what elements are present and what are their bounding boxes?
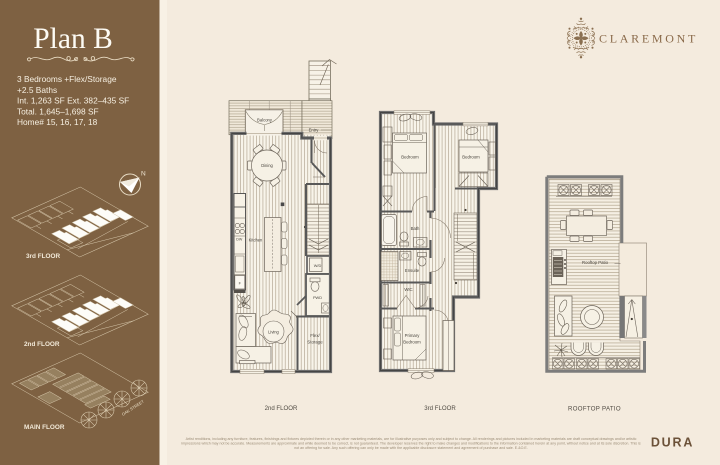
- svg-text:DURA: DURA: [651, 435, 694, 449]
- svg-text:2nd FLOOR: 2nd FLOOR: [265, 405, 298, 412]
- svg-text:Plan B: Plan B: [33, 23, 113, 55]
- svg-text:WIC: WIC: [404, 287, 412, 292]
- svg-text:MAIN FLOOR: MAIN FLOOR: [24, 424, 65, 431]
- svg-text:W/D: W/D: [314, 263, 322, 268]
- svg-text:2nd FLOOR: 2nd FLOOR: [24, 341, 60, 348]
- svg-text:Balcony: Balcony: [257, 118, 273, 123]
- svg-text:Bedroom: Bedroom: [403, 340, 421, 345]
- svg-text:3 Bedrooms +Flex/Storage: 3 Bedrooms +Flex/Storage: [17, 74, 117, 84]
- svg-text:PWD: PWD: [313, 295, 322, 300]
- svg-text:Kitchen: Kitchen: [249, 238, 263, 243]
- svg-text:not an offering for sale. Any: not an offering for sale. Any such offer…: [294, 446, 528, 450]
- svg-text:Living: Living: [268, 330, 279, 335]
- svg-text:N: N: [141, 171, 146, 178]
- svg-text:Flex/: Flex/: [310, 333, 320, 338]
- svg-text:Storage: Storage: [307, 340, 323, 345]
- svg-text:3rd FLOOR: 3rd FLOOR: [424, 405, 456, 412]
- svg-text:Home# 15, 16, 17, 18: Home# 15, 16, 17, 18: [17, 117, 98, 127]
- svg-text:3rd FLOOR: 3rd FLOOR: [26, 253, 60, 260]
- svg-text:Entry: Entry: [309, 128, 320, 133]
- svg-text:Bedroom: Bedroom: [462, 155, 480, 160]
- svg-text:Bedroom: Bedroom: [401, 155, 419, 160]
- svg-text:CLAREMONT: CLAREMONT: [599, 32, 698, 46]
- svg-text:impressions which may not be a: impressions which may not be accurate. M…: [181, 442, 641, 446]
- svg-text:Primary: Primary: [405, 333, 421, 338]
- svg-text:Int. 1,263 SF Ext. 382–435 SF: Int. 1,263 SF Ext. 382–435 SF: [17, 96, 129, 106]
- svg-text:ROOFTOP PATIO: ROOFTOP PATIO: [568, 406, 621, 413]
- svg-text:Bath: Bath: [411, 226, 420, 231]
- svg-text:Dining: Dining: [261, 163, 273, 168]
- svg-text:Ensuite: Ensuite: [405, 268, 420, 273]
- svg-text:Total. 1,645–1,698 SF: Total. 1,645–1,698 SF: [17, 106, 99, 116]
- svg-text:DW: DW: [236, 238, 243, 242]
- svg-text:+2.5 Baths: +2.5 Baths: [17, 85, 57, 95]
- svg-text:Artist renditions, including a: Artist renditions, including any furnitu…: [186, 437, 637, 441]
- svg-text:Rooftop Patio: Rooftop Patio: [582, 260, 609, 265]
